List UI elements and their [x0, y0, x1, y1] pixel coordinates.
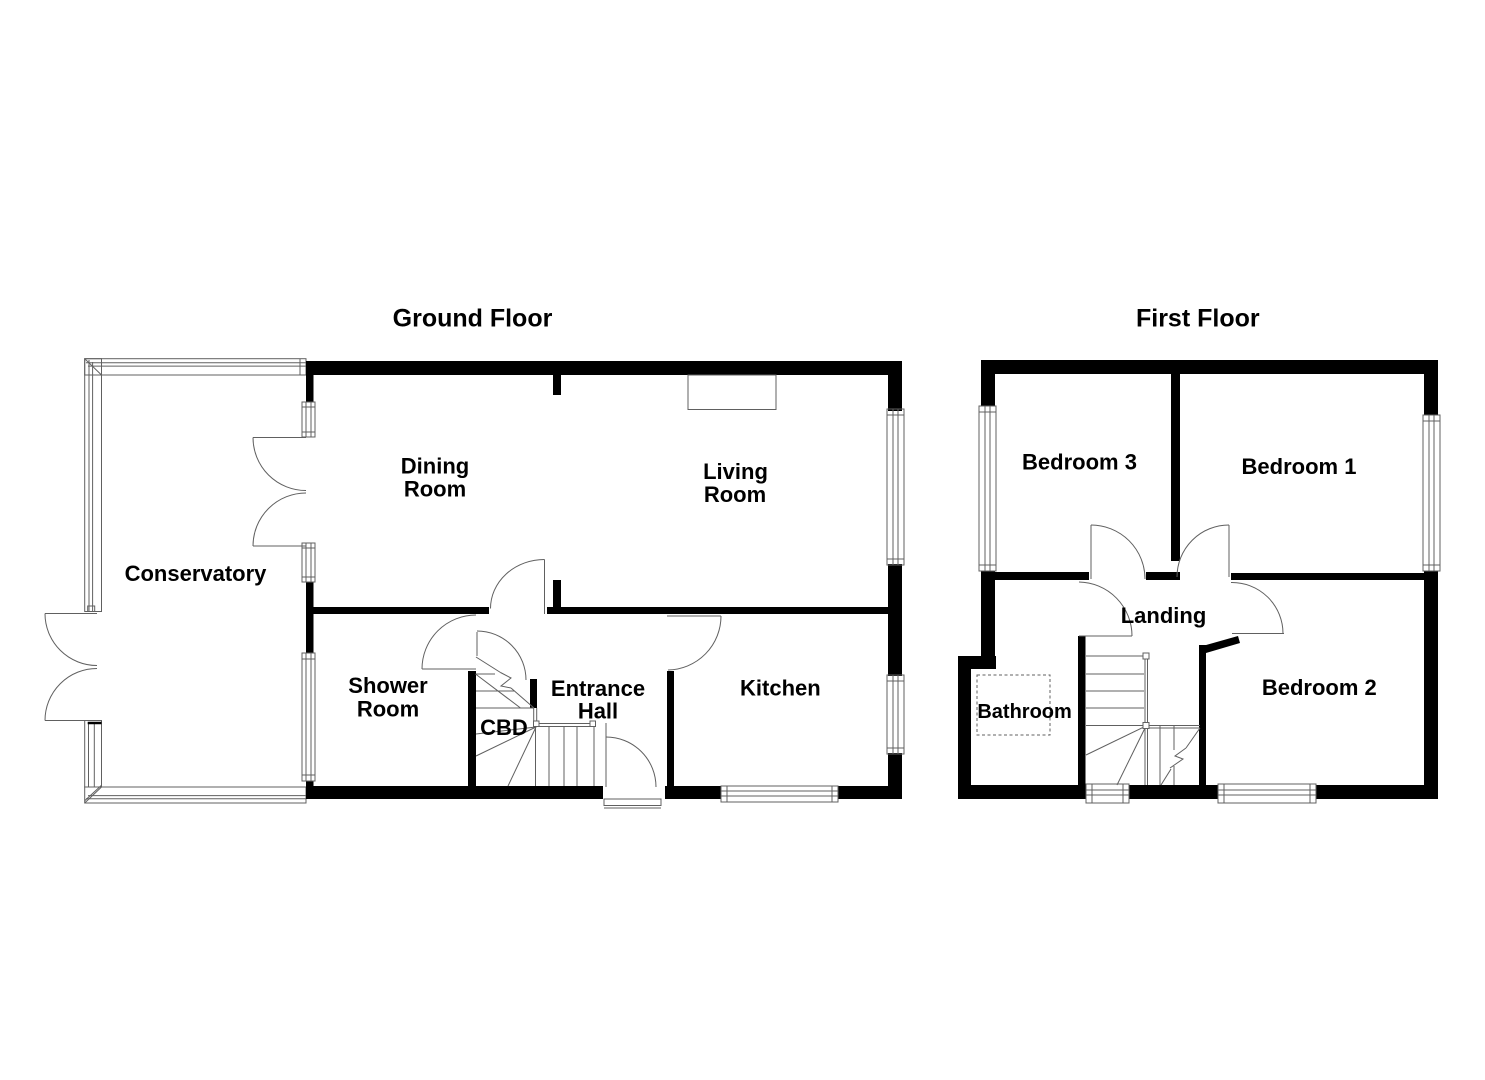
svg-text:Living: Living	[703, 459, 768, 484]
svg-text:Bedroom 1: Bedroom 1	[1242, 454, 1357, 479]
svg-text:CBD: CBD	[480, 715, 528, 740]
svg-text:Conservatory: Conservatory	[125, 561, 268, 586]
svg-text:Shower: Shower	[348, 673, 428, 698]
svg-text:Bedroom 3: Bedroom 3	[1022, 450, 1137, 475]
svg-text:Dining: Dining	[401, 454, 469, 479]
svg-text:Kitchen: Kitchen	[740, 676, 821, 701]
svg-text:Bathroom: Bathroom	[977, 701, 1071, 723]
svg-text:Room: Room	[704, 482, 766, 507]
svg-text:Ground Floor: Ground Floor	[393, 305, 553, 333]
svg-text:Room: Room	[404, 477, 466, 502]
svg-text:Entrance: Entrance	[551, 676, 645, 701]
svg-text:Bedroom 2: Bedroom 2	[1262, 675, 1377, 700]
svg-text:Room: Room	[357, 697, 419, 722]
svg-text:Hall: Hall	[578, 699, 618, 724]
svg-text:Landing: Landing	[1121, 603, 1207, 628]
svg-text:First Floor: First Floor	[1136, 305, 1260, 333]
